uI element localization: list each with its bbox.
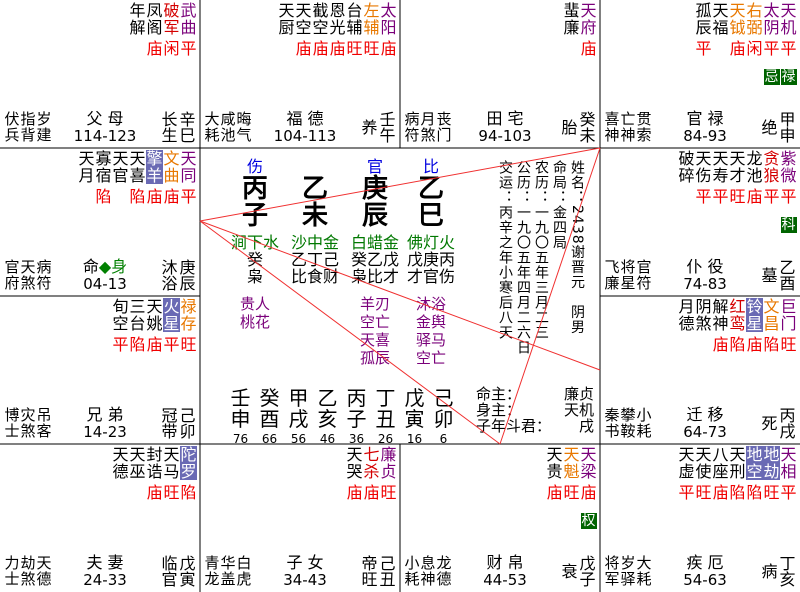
palace-cell-乙酉[interactable]: 破碎 天伤平天寿平天才旺龙池庙贪狼平紫微平科飞廉将星官符仆 役74-83墓乙酉 xyxy=(600,148,800,296)
char: 红 xyxy=(729,298,746,315)
minor-star: 小耗 xyxy=(636,407,652,439)
dayun-start-age: 56 xyxy=(284,432,313,446)
char: 刑 xyxy=(729,463,746,480)
char: 空 xyxy=(295,19,312,36)
char: 喜 xyxy=(604,111,620,127)
star-column: 地空陷 xyxy=(746,446,763,501)
char: 天 xyxy=(163,446,180,463)
star-column: 天姚庙 xyxy=(146,298,163,353)
cell-ganzhi: 乙酉 xyxy=(779,260,796,292)
char: 天 xyxy=(780,2,797,19)
char: 府 xyxy=(4,275,20,291)
char: 书 xyxy=(604,423,620,439)
char: 碎 xyxy=(678,167,695,184)
minor-star: 天煞 xyxy=(20,259,36,291)
char: 博 xyxy=(4,407,20,423)
shensha-note: 羊刃 xyxy=(347,295,403,313)
minor-star-group: 喜神亡神贯索 xyxy=(604,111,652,143)
char: 天 xyxy=(129,150,146,167)
brightness-label: 旺 xyxy=(729,188,746,205)
cell-ganzhi: 己卯 xyxy=(179,408,196,440)
palace-name: 田 宅 xyxy=(455,111,555,127)
brightness-label: 旺 xyxy=(346,40,363,57)
hidden-stems: 癸乙戊 xyxy=(347,251,403,268)
star-column: 天厨 xyxy=(278,2,295,57)
char: 龙 xyxy=(746,150,763,167)
char: 指 xyxy=(20,111,36,127)
minor-star: 晦气 xyxy=(236,111,252,143)
info-column-交运: 交运：丙辛之年小寒后八天 xyxy=(496,160,514,508)
minor-star: 指背 xyxy=(20,111,36,143)
char: 辅 xyxy=(363,19,380,36)
dayun-column[interactable]: 甲戌56 xyxy=(284,388,313,446)
minor-star: 华盖 xyxy=(220,555,236,587)
char: 机 xyxy=(780,19,797,36)
char: 白 xyxy=(236,555,252,571)
char: 伏 xyxy=(4,111,20,127)
char: 墓 xyxy=(761,268,778,284)
char: 官 xyxy=(112,167,129,184)
dayun-branch: 寅 xyxy=(400,409,429,430)
brightness-label: 平 xyxy=(780,484,797,501)
char: 索 xyxy=(636,127,652,143)
minor-star: 飞廉 xyxy=(604,259,620,291)
star-column: 天空庙 xyxy=(295,2,312,57)
pillar-stem: 乙 xyxy=(403,176,459,203)
char: 旬 xyxy=(112,298,129,315)
pillar-branch: 未 xyxy=(287,203,343,230)
age-range: 34-43 xyxy=(255,571,355,589)
shensha-note: 贵人 xyxy=(227,295,283,313)
brightness-label: 闲 xyxy=(163,40,180,57)
transform-badge: 科 xyxy=(781,217,797,233)
char: 天 xyxy=(580,2,597,19)
char: 哭 xyxy=(346,463,363,480)
info-column-命局: 命局：金四局 xyxy=(550,160,568,508)
brightness-label: 平 xyxy=(780,188,797,205)
dayun-branch: 卯 xyxy=(429,409,458,430)
brightness-label: 陷 xyxy=(729,484,746,501)
char: 神 xyxy=(604,127,620,143)
char: 天 xyxy=(278,2,295,19)
char: 亥 xyxy=(779,572,796,588)
brightness-label xyxy=(712,40,729,57)
star-column: 破军闲 xyxy=(163,2,180,57)
star-column: 天喜陷 xyxy=(129,150,146,205)
char: 破 xyxy=(163,2,180,19)
star-column: 贪狼平 xyxy=(763,150,780,233)
dayun-column[interactable]: 丁丑26 xyxy=(371,388,400,446)
char: 光 xyxy=(329,19,346,36)
char: 铃 xyxy=(746,298,763,315)
char: 使 xyxy=(695,463,712,480)
star-column: 廉贞旺 xyxy=(380,446,397,501)
palace-name-part: ◆身 xyxy=(99,257,127,276)
brightness-label xyxy=(563,40,580,57)
brightness-label: 庙 xyxy=(146,336,163,353)
minor-star-group: 青龙华盖白虎 xyxy=(204,555,252,587)
star-column: 天马旺 xyxy=(163,446,180,501)
dayun-column[interactable]: 壬申76 xyxy=(226,388,255,446)
brightness-label: 庙 xyxy=(329,40,346,57)
char: 符 xyxy=(636,275,652,291)
info-label: 交运： xyxy=(497,160,513,205)
char: 阴 xyxy=(763,19,780,36)
char: 破 xyxy=(678,150,695,167)
dayun-column[interactable]: 己卯6 xyxy=(429,388,458,446)
minor-star: 攀鞍 xyxy=(620,407,636,439)
char: 煞 xyxy=(420,127,436,143)
life-stage: 沐浴 xyxy=(161,260,178,292)
brightness-label: 平 xyxy=(695,188,712,205)
star-column: 巨门旺 xyxy=(780,298,797,353)
char: 地 xyxy=(746,446,763,463)
info-value: 丙辛之年小寒后八天 xyxy=(497,205,513,340)
char: 晦 xyxy=(236,111,252,127)
master-label: 命主： xyxy=(476,386,521,402)
dayun-stem: 壬 xyxy=(226,388,255,409)
life-stage: 衰 xyxy=(561,556,578,588)
char: 卯 xyxy=(179,424,196,440)
char: 飞 xyxy=(604,259,620,275)
palace-cell-甲申[interactable]: 孤辰平天福 天钺庙右弼闲太阴平忌天机平禄喜神亡神贯索官 禄84-93绝甲申 xyxy=(600,0,800,148)
star-list: 蜚廉 天府庙 xyxy=(563,2,597,57)
info-label: 命局： xyxy=(551,160,567,205)
star-column: 孤辰平 xyxy=(695,2,712,85)
char: 大 xyxy=(636,555,652,571)
char: 天 xyxy=(146,298,163,315)
stage-ganzhi: 冠带己卯 xyxy=(160,408,196,440)
brightness-label: 庙 xyxy=(363,484,380,501)
star-list: 孤辰平天福 天钺庙右弼闲太阴平忌天机平禄 xyxy=(695,2,797,85)
char: 大 xyxy=(204,111,220,127)
shensha-notes: 羊刃空亡天喜孤辰 xyxy=(347,295,403,367)
char: 龙 xyxy=(436,555,452,571)
info-column-公历: 公历：一九〇五年四月二六日 xyxy=(514,160,532,508)
star-column: 三台陷 xyxy=(129,298,146,353)
char: 天 xyxy=(129,446,146,463)
star-column: 地劫旺 xyxy=(763,446,780,501)
dayun-branch: 丑 xyxy=(371,409,400,430)
brightness-label: 陷 xyxy=(746,484,763,501)
char: 天 xyxy=(712,2,729,19)
char: 昌 xyxy=(763,315,780,332)
palace-name: 夫 妻 xyxy=(55,555,155,571)
dayun-branch: 子 xyxy=(342,409,371,430)
palace-cell-壬午[interactable]: 天厨 天空庙截空庙恩光庙台辅旺左辅旺太阳庙大耗咸池晦气福 德104-113养壬午 xyxy=(200,0,400,148)
char: 丑 xyxy=(379,572,396,588)
star-column: 天相平 xyxy=(780,446,797,501)
char: 阁 xyxy=(146,19,163,36)
char: 息 xyxy=(420,555,436,571)
char: 建 xyxy=(36,127,52,143)
char: 月 xyxy=(420,111,436,127)
minor-star: 咸池 xyxy=(220,111,236,143)
char: 岁 xyxy=(36,111,52,127)
star-column: 天府庙 xyxy=(580,2,597,57)
star-column: 八座庙 xyxy=(712,446,729,501)
char: 天 xyxy=(78,150,95,167)
minor-star-group: 官府天煞病符 xyxy=(4,259,52,291)
char: 狼 xyxy=(763,167,780,184)
bazi-pillar: 乙未沙中金乙丁己比食财 xyxy=(287,158,343,285)
brightness-label: 陷 xyxy=(763,336,780,353)
brightness-label: 旺 xyxy=(695,484,712,501)
char: 微 xyxy=(780,167,797,184)
char: 鸾 xyxy=(729,315,746,332)
char: 虚 xyxy=(678,463,695,480)
char: 贯 xyxy=(636,111,652,127)
master-label: 身主： xyxy=(476,402,521,418)
star-column: 紫微平科 xyxy=(780,150,797,233)
brightness-label: 庙 xyxy=(295,40,312,57)
dayun-stem: 癸 xyxy=(255,388,284,409)
char: 未 xyxy=(579,128,596,144)
palace-cell-丙戌[interactable]: 月德 阴煞 解神庙红鸾陷铃星庙文昌陷巨门旺秦书攀鞍小耗迁 移64-73死丙戌 xyxy=(600,296,800,444)
char: 兵 xyxy=(4,127,20,143)
char: 辰 xyxy=(179,276,196,292)
bazi-pillar: 伤丙子涧下水癸枭贵人桃花 xyxy=(227,158,283,331)
char: 天 xyxy=(112,446,129,463)
brightness-label: 庙 xyxy=(712,484,729,501)
stage-ganzhi: 长生辛巳 xyxy=(160,112,196,144)
age-range: 54-63 xyxy=(655,571,755,589)
cell-ganzhi: 癸未 xyxy=(579,112,596,144)
minor-star: 官符 xyxy=(636,259,652,291)
palace-cell-辛巳[interactable]: 年解 凤阁庙破军闲武曲平伏兵指背岁建父 母114-123长生辛巳 xyxy=(0,0,200,148)
hidden-ten-gods: 才官伤 xyxy=(403,268,459,285)
char: 亡 xyxy=(620,111,636,127)
nayin-label: 沙中金 xyxy=(287,234,343,251)
brightness-label: 平 xyxy=(712,188,729,205)
shensha-notes: 沐浴金舆驿马空亡 xyxy=(403,295,459,367)
pillar-branch: 巳 xyxy=(403,203,459,230)
char: 病 xyxy=(404,111,420,127)
hidden-stems: 癸 xyxy=(227,251,283,268)
dayun-start-age: 16 xyxy=(400,432,429,446)
minor-star: 天德 xyxy=(36,555,52,587)
char: 咸 xyxy=(220,111,236,127)
star-column: 右弼闲 xyxy=(746,2,763,85)
brightness-label: 庙 xyxy=(746,336,763,353)
dayun-stem: 甲 xyxy=(284,388,313,409)
minor-star-group: 博士灾煞吊客 xyxy=(4,407,52,439)
char: 劫 xyxy=(763,463,780,480)
minor-star: 丧门 xyxy=(436,111,452,143)
brightness-label xyxy=(129,484,146,501)
char: 座 xyxy=(712,463,729,480)
char: 三 xyxy=(129,298,146,315)
char: 辅 xyxy=(346,19,363,36)
char: 太 xyxy=(763,2,780,19)
minor-star: 岁建 xyxy=(36,111,52,143)
hidden-stems: 乙丁己 xyxy=(287,251,343,268)
life-stage: 胎 xyxy=(561,112,578,144)
star-column: 天寿平 xyxy=(712,150,729,233)
pillar-branch: 子 xyxy=(227,203,283,230)
dayun-stem: 己 xyxy=(429,388,458,409)
char: 力 xyxy=(4,555,20,571)
dayun-column[interactable]: 癸酉66 xyxy=(255,388,284,446)
minor-star: 亡神 xyxy=(620,111,636,143)
dayun-column[interactable]: 乙亥46 xyxy=(313,388,342,446)
shensha-note: 桃花 xyxy=(227,313,283,331)
brightness-label: 庙 xyxy=(146,188,163,205)
info-value: 2438谢晋元 阴男 xyxy=(569,205,585,335)
char: 盖 xyxy=(220,571,236,587)
palace-name: 父 母 xyxy=(55,111,155,127)
info-label: 公历： xyxy=(515,160,531,205)
star-column: 武曲平 xyxy=(180,2,197,57)
palace-cell-己丑[interactable]: 天哭庙七杀庙廉贞旺青龙华盖白虎子 女34-43帝旺己丑 xyxy=(200,444,400,592)
age-range: 104-113 xyxy=(255,127,355,145)
brightness-label: 庙 xyxy=(729,40,746,57)
dayun-start-age: 76 xyxy=(226,432,255,446)
char: 空 xyxy=(312,19,329,36)
palace-cell-庚辰[interactable]: 天月 寡宿陷天官 天喜陷擎羊庙文曲庙天同平官府天煞病符命◆身04-13沐浴庚辰 xyxy=(0,148,200,296)
char: 八 xyxy=(712,446,729,463)
star-list: 月德 阴煞 解神庙红鸾陷铃星庙文昌陷巨门旺 xyxy=(678,298,797,353)
char: 天 xyxy=(712,150,729,167)
palace-cell-癸未[interactable]: 蜚廉 天府庙病符月煞丧门田 宅94-103胎癸未 xyxy=(400,0,600,148)
star-list: 天厨 天空庙截空庙恩光庙台辅旺左辅旺太阳庙 xyxy=(278,2,397,57)
brightness-label xyxy=(678,188,695,205)
minor-star: 贯索 xyxy=(636,111,652,143)
minor-star: 秦书 xyxy=(604,407,620,439)
char: 虎 xyxy=(236,571,252,587)
transform-badge: 忌 xyxy=(764,69,780,85)
star-column: 天月 xyxy=(78,150,95,205)
char: 德 xyxy=(436,571,452,587)
char: 煞 xyxy=(20,423,36,439)
char: 丧 xyxy=(436,111,452,127)
brightness-label: 庙 xyxy=(312,40,329,57)
minor-star: 大耗 xyxy=(204,111,220,143)
star-column: 寡宿陷 xyxy=(95,150,112,205)
brightness-label: 平 xyxy=(678,484,695,501)
pillar-stem: 庚 xyxy=(347,176,403,203)
minor-star-group: 将军岁驿大耗 xyxy=(604,555,652,587)
info-value: 一九〇五年四月二六日 xyxy=(515,205,531,355)
char: 岁 xyxy=(620,555,636,571)
star-column: 年解 xyxy=(129,2,146,57)
dayun-column[interactable]: 丙子36 xyxy=(342,388,371,446)
char: 死 xyxy=(761,416,778,432)
brightness-label xyxy=(129,40,146,57)
dayun-column[interactable]: 戊寅16 xyxy=(400,388,429,446)
char: 天 xyxy=(729,150,746,167)
brightness-label: 旺 xyxy=(780,336,797,353)
star-column: 解神庙 xyxy=(712,298,729,353)
char: 将 xyxy=(604,555,620,571)
minor-star: 喜神 xyxy=(604,111,620,143)
char: 解 xyxy=(712,298,729,315)
char: 德 xyxy=(36,571,52,587)
life-stage: 帝旺 xyxy=(361,556,378,588)
star-list: 天虚平天使旺八座庙天刑陷地空陷地劫旺天相平 xyxy=(678,446,797,501)
char: 攀 xyxy=(620,407,636,423)
palace-cell-戊寅[interactable]: 天德 天巫 封诰庙天马旺陀罗陷力士劫煞天德夫 妻24-33临官戊寅 xyxy=(0,444,200,592)
palace-cell-丁亥[interactable]: 天虚平天使旺八座庙天刑陷地空陷地劫旺天相平将军岁驿大耗疾 厄54-63病丁亥 xyxy=(600,444,800,592)
age-range: 94-103 xyxy=(455,127,555,145)
master-row: 命主：廉贞 xyxy=(476,386,594,402)
info-label: 农历： xyxy=(533,160,549,205)
star-column: 天虚平 xyxy=(678,446,695,501)
char: 士 xyxy=(4,571,20,587)
minor-star-group: 飞廉将星官符 xyxy=(604,259,652,291)
char: 巨 xyxy=(780,298,797,315)
char: 巳 xyxy=(179,128,196,144)
minor-star-group: 伏兵指背岁建 xyxy=(4,111,52,143)
char: 陀 xyxy=(180,446,197,463)
char: 华 xyxy=(220,555,236,571)
dayun-branch: 戌 xyxy=(284,409,313,430)
char: 伤 xyxy=(695,167,712,184)
char: 擎 xyxy=(146,150,163,167)
char: 廉 xyxy=(380,446,397,463)
hidden-ten-gods: 枭 xyxy=(227,268,283,285)
char: 带 xyxy=(161,424,178,440)
shensha-note: 驿马 xyxy=(403,331,459,349)
minor-star: 大耗 xyxy=(636,555,652,587)
brightness-label: 旺 xyxy=(363,40,380,57)
star-column: 台辅旺 xyxy=(346,2,363,57)
star-column: 火星平 xyxy=(163,298,180,353)
minor-star: 青龙 xyxy=(204,555,220,587)
char: 旺 xyxy=(361,572,378,588)
char: 天 xyxy=(780,446,797,463)
palace-cell-己卯[interactable]: 旬空平三台陷天姚庙火星平禄存旺博士灾煞吊客兄 弟14-23冠带己卯 xyxy=(0,296,200,444)
stage-ganzhi: 病丁亥 xyxy=(760,556,796,588)
char: 青 xyxy=(204,555,220,571)
char: 浴 xyxy=(161,276,178,292)
shensha-note: 天喜 xyxy=(347,331,403,349)
palace-name-part: 命 xyxy=(83,257,99,276)
bazi-pillar: 比乙巳佛灯火戊庚丙才官伤沐浴金舆驿马空亡 xyxy=(403,158,459,367)
life-stage: 死 xyxy=(761,408,778,440)
char: 病 xyxy=(761,564,778,580)
minor-star-group: 秦书攀鞍小耗 xyxy=(604,407,652,439)
shensha-notes: 贵人桃花 xyxy=(227,295,283,331)
info-value: 一九〇五年三月二三 xyxy=(533,205,549,340)
life-stage: 临官 xyxy=(161,556,178,588)
char: 相 xyxy=(780,463,797,480)
char: 右 xyxy=(746,2,763,19)
brightness-label: 陷 xyxy=(95,188,112,205)
brightness-label xyxy=(78,188,95,205)
star-column: 天机平禄 xyxy=(780,2,797,85)
life-stage: 病 xyxy=(761,556,778,588)
brightness-label: 平 xyxy=(763,40,780,57)
stage-ganzhi: 胎癸未 xyxy=(560,112,596,144)
char: 驿 xyxy=(620,571,636,587)
char: 酉 xyxy=(779,276,796,292)
char: 生 xyxy=(161,128,178,144)
brightness-label: 平 xyxy=(780,40,797,57)
brightness-label: 庙 xyxy=(380,40,397,57)
char: 符 xyxy=(404,127,420,143)
char: 钺 xyxy=(729,19,746,36)
star-column: 天伤平 xyxy=(695,150,712,233)
shensha-note: 金舆 xyxy=(403,313,459,331)
stage-ganzhi: 绝甲申 xyxy=(760,112,796,144)
minor-star-group: 力士劫煞天德 xyxy=(4,555,52,587)
center-bazi-panel: 伤丙子涧下水癸枭贵人桃花 乙未沙中金乙丁己比食财官庚辰白蜡金癸乙戊枭比才羊刃空亡… xyxy=(200,148,600,444)
dayun-stem: 丁 xyxy=(371,388,400,409)
char: 同 xyxy=(180,167,197,184)
char: 天 xyxy=(678,446,695,463)
star-column: 铃星庙 xyxy=(746,298,763,353)
